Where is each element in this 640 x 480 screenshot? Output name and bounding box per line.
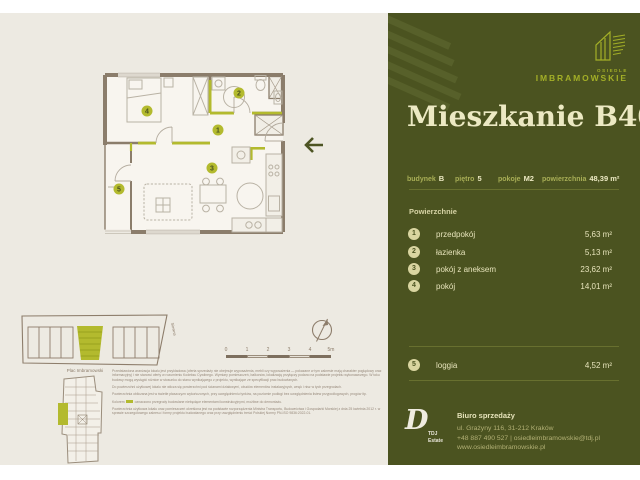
room-number-badge: 4 bbox=[408, 280, 420, 292]
site-building-b-highlighted bbox=[77, 326, 103, 360]
scale-bar: 0 1 2 3 4 5m bbox=[224, 347, 336, 361]
divider bbox=[409, 189, 619, 190]
room-label: pokój bbox=[436, 282, 455, 291]
estate-logo-icon bbox=[574, 30, 628, 62]
room-label: łazienka bbox=[436, 248, 465, 257]
tdj-estate-wordmark: TDJEstate bbox=[428, 431, 443, 444]
detail-label: powierzchnia bbox=[542, 176, 586, 183]
marker-1: 1 bbox=[216, 128, 220, 135]
detail-value: M2 bbox=[524, 174, 534, 183]
marker-5: 5 bbox=[117, 187, 121, 194]
leaf-pattern-decoration bbox=[388, 13, 508, 113]
room-number-badge: 2 bbox=[408, 246, 420, 258]
office-title: Biuro sprzedaży bbox=[457, 411, 600, 420]
disclaimer-paragraph: Do powierzchni użytkowej lokalu nie wlic… bbox=[112, 385, 384, 389]
flyer-page: 1 2 3 4 5 Pla bbox=[0, 0, 640, 480]
scale-segment bbox=[247, 355, 268, 358]
color-note-suffix: oznaczono przegrody budowlane niebędące … bbox=[135, 400, 282, 404]
scale-segment bbox=[289, 355, 310, 358]
room-row-loggia: 5 loggia 4,52 m² bbox=[408, 359, 612, 372]
scale-tick: 1 bbox=[242, 347, 252, 353]
building-floor-location bbox=[56, 373, 108, 467]
office-phone-email: +48 887 490 527 | osiedleimbramowskie@td… bbox=[457, 434, 600, 444]
detail-building: budynekB bbox=[407, 168, 444, 186]
disclaimer-paragraph: Przedstawiona aranżacja lokalu jest przy… bbox=[112, 369, 384, 382]
room-number-badge: 5 bbox=[408, 359, 420, 371]
detail-area: powierzchnia48,39 m² bbox=[542, 168, 619, 186]
disclaimer-paragraph: Powierzchnia obliczana jest w świetle pł… bbox=[112, 392, 384, 396]
detail-label: pokoje bbox=[498, 176, 521, 183]
room-label: przedpokój bbox=[436, 230, 475, 239]
disclaimer-paragraph: Powierzchnia użytkowa lokalu oraz pomies… bbox=[112, 407, 384, 416]
color-note-prefix: Kolorem bbox=[112, 400, 125, 404]
marker-3: 3 bbox=[210, 166, 214, 173]
room-area-value: 4,52 m² bbox=[585, 361, 612, 370]
logo-text-imbramowskie: IMBRAMOWSKIE bbox=[536, 73, 628, 83]
areas-heading: Powierzchnie bbox=[409, 207, 457, 216]
room-area-value: 5,63 m² bbox=[585, 230, 612, 239]
divider bbox=[409, 380, 619, 381]
room-area-value: 14,01 m² bbox=[580, 282, 612, 291]
street-label: Siewna bbox=[170, 322, 178, 337]
scale-segment bbox=[226, 355, 247, 358]
room-area-value: 23,62 m² bbox=[580, 265, 612, 274]
detail-label: piętro bbox=[455, 176, 474, 183]
scale-tick: 3 bbox=[284, 347, 294, 353]
tdj-estate-logo: D bbox=[405, 405, 428, 436]
disclaimer-text: Przedstawiona aranżacja lokalu jest przy… bbox=[112, 369, 384, 418]
room-row-pokoj-z-aneksem: 3 pokój z aneksem 23,62 m² bbox=[408, 263, 612, 276]
brand-line: TDJ bbox=[428, 431, 437, 437]
scale-tick: 5m bbox=[326, 347, 336, 353]
detail-label: budynek bbox=[407, 176, 436, 183]
brand-line: Estate bbox=[428, 438, 443, 444]
disclaimer-color-note: Koloremoznaczono przegrody budowlane nie… bbox=[112, 400, 384, 404]
apartment-title: Mieszkanie B40 bbox=[407, 100, 640, 133]
scale-tick: 4 bbox=[305, 347, 315, 353]
room-number-badge: 3 bbox=[408, 263, 420, 275]
room-row-lazienka: 2 łazienka 5,13 m² bbox=[408, 246, 612, 259]
site-plan: Plac Imbramowski Siewna bbox=[18, 301, 178, 379]
scale-tick: 0 bbox=[221, 347, 231, 353]
room-row-pokoj: 4 pokój 14,01 m² bbox=[408, 280, 612, 293]
office-info: Biuro sprzedaży ul. Grażyny 116, 31-212 … bbox=[457, 411, 600, 453]
marker-2: 2 bbox=[237, 91, 241, 98]
compass-icon bbox=[306, 313, 338, 345]
entrance-arrow-icon bbox=[302, 135, 324, 155]
sales-office-footer: D TDJEstate Biuro sprzedaży ul. Grażyny … bbox=[405, 409, 625, 459]
room-label: pokój z aneksem bbox=[436, 265, 496, 274]
room-area-value: 5,13 m² bbox=[585, 248, 612, 257]
color-legend-swatch bbox=[126, 400, 133, 403]
site-building-a bbox=[28, 327, 73, 358]
office-address: ul. Grażyny 116, 31-212 Kraków bbox=[457, 424, 600, 434]
detail-value: 5 bbox=[477, 174, 481, 183]
marker-4: 4 bbox=[145, 109, 149, 116]
estate-logo: OSIEDLE IMBRAMOWSKIE bbox=[536, 30, 628, 83]
apartment-floorplan: 1 2 3 4 5 bbox=[98, 68, 290, 240]
unit-location-highlight bbox=[58, 403, 68, 425]
room-row-przedpokoj: 1 przedpokój 5,63 m² bbox=[408, 228, 612, 241]
office-website: www.osiedleimbramowskie.pl bbox=[457, 443, 600, 453]
divider bbox=[409, 346, 619, 347]
detail-value: B bbox=[439, 174, 444, 183]
plan-panel: 1 2 3 4 5 Pla bbox=[0, 13, 388, 465]
detail-floor: piętro5 bbox=[455, 168, 482, 186]
scale-segment bbox=[310, 355, 331, 358]
site-building-c bbox=[113, 327, 159, 358]
room-number-badge: 1 bbox=[408, 228, 420, 240]
room-label: loggia bbox=[436, 361, 457, 370]
detail-value: 48,39 m² bbox=[589, 174, 619, 183]
scale-tick: 2 bbox=[263, 347, 273, 353]
scale-segment bbox=[268, 355, 289, 358]
info-panel: OSIEDLE IMBRAMOWSKIE Mieszkanie B40 budy… bbox=[388, 13, 640, 465]
detail-rooms: pokojeM2 bbox=[498, 168, 534, 186]
